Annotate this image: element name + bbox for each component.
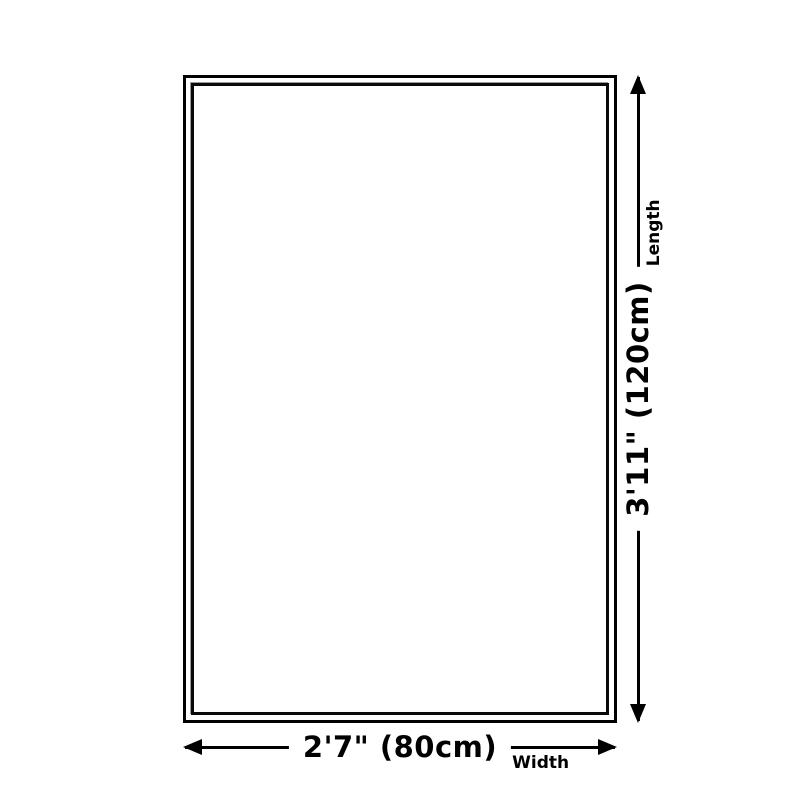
rug-outline (183, 75, 617, 723)
length-axis-label: Length (644, 199, 664, 266)
arrow-down-icon (630, 704, 646, 723)
length-size-label: 3'11" (120cm) (620, 267, 656, 531)
size-diagram: 2'7" (80cm) Width 3'11" (120cm) Length (0, 0, 800, 800)
rug-inner-outline (191, 83, 609, 715)
arrow-left-icon (183, 739, 202, 755)
width-label-group: 2'7" (80cm) Width (289, 729, 511, 765)
width-size-label: 2'7" (80cm) (289, 729, 511, 765)
length-label-group: 3'11" (120cm) Length (620, 267, 656, 531)
arrow-right-icon (598, 739, 617, 755)
width-axis-label: Width (512, 753, 569, 773)
arrow-up-icon (630, 75, 646, 94)
